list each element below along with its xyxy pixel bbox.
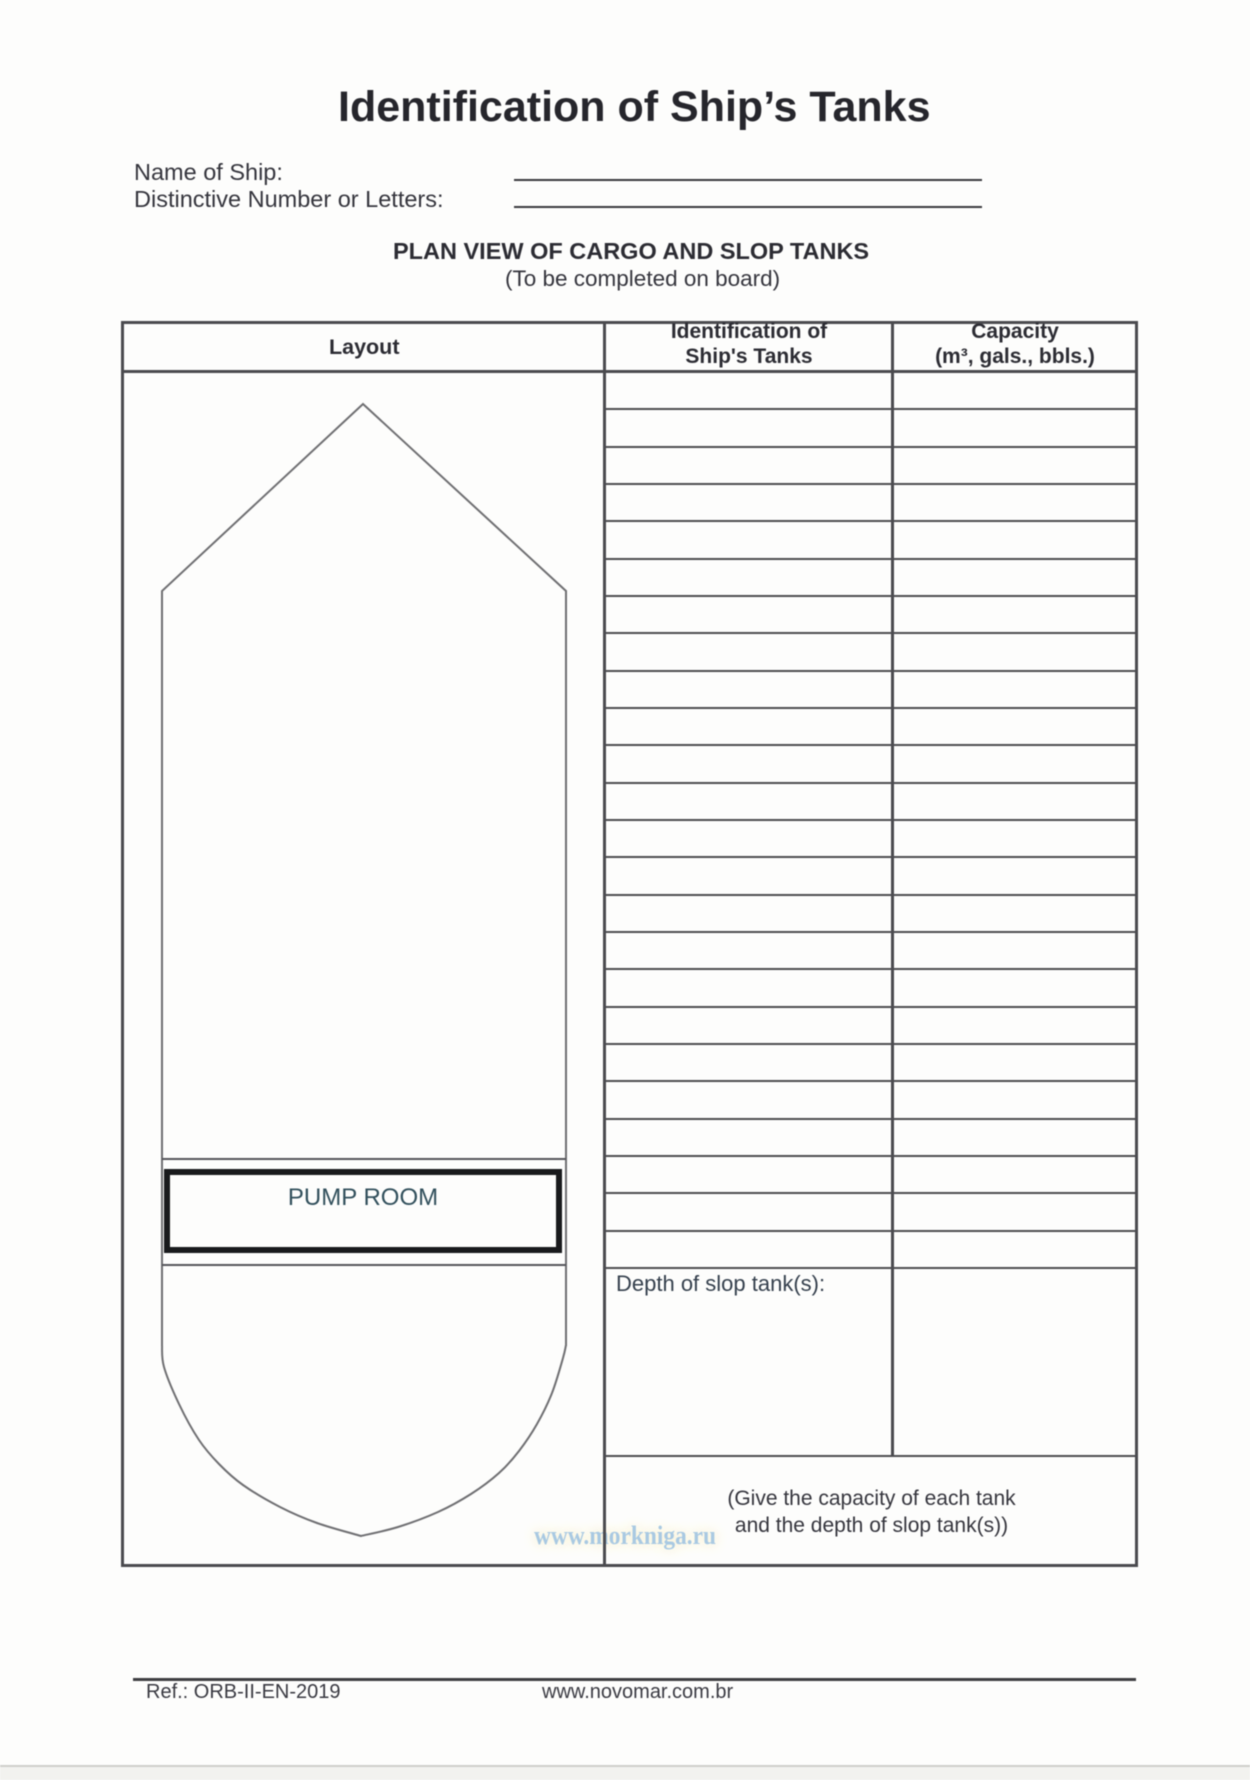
svg-text:PUMP ROOM: PUMP ROOM — [288, 1184, 438, 1211]
